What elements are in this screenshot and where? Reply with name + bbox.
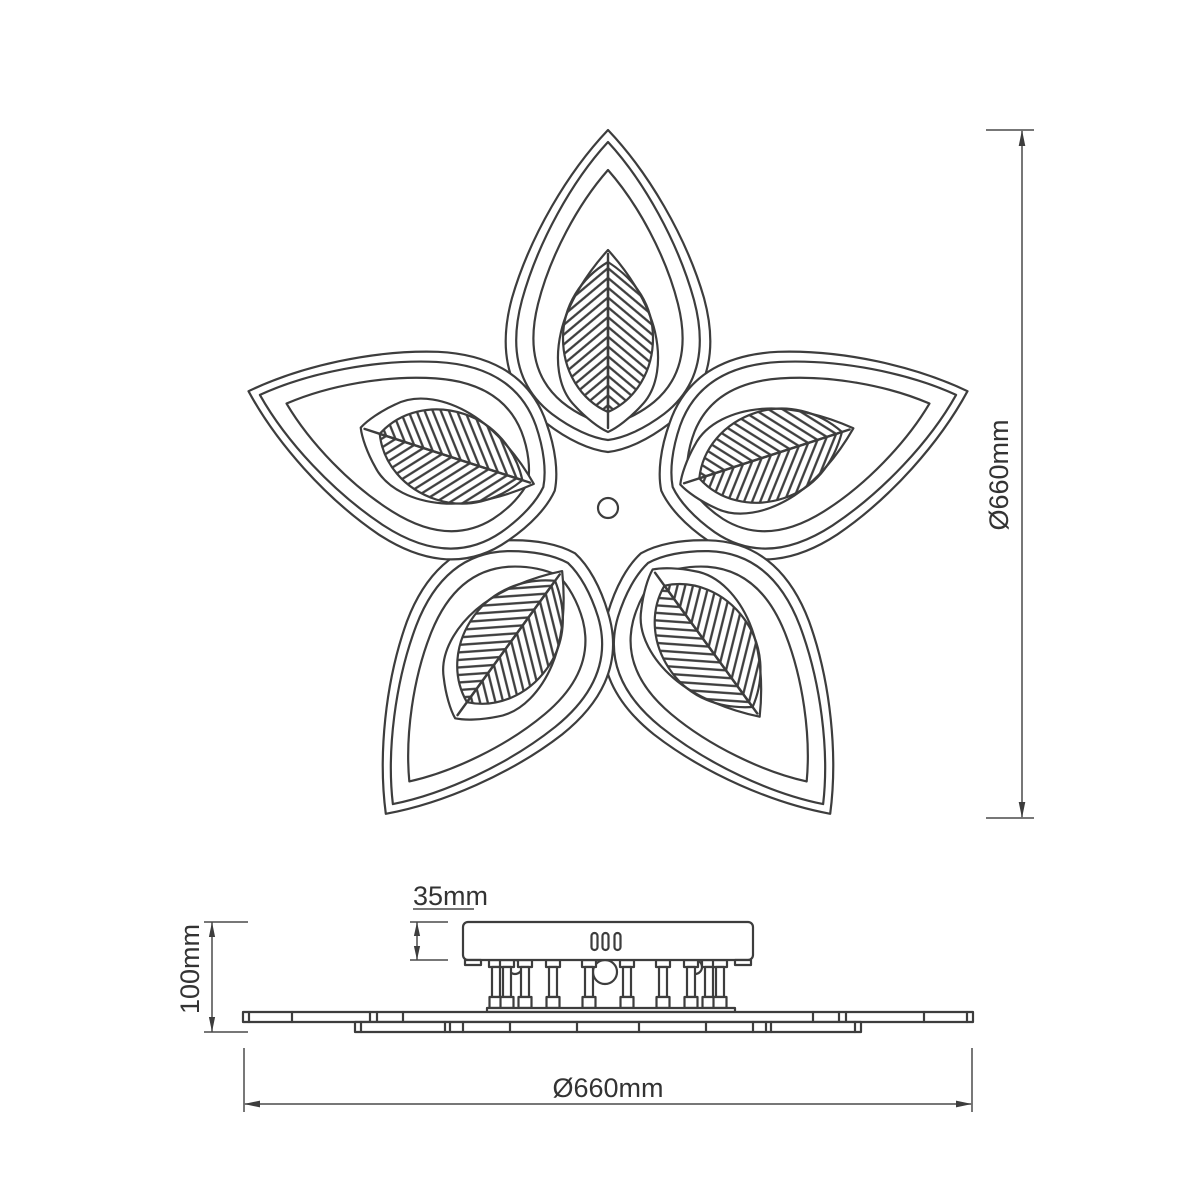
petal (558, 493, 913, 874)
technical-drawing-page: Ø660mm 35mm 100mm Ø660mm (0, 0, 1200, 1200)
driver-circles (508, 960, 702, 984)
base-diameter-label: Ø660mm (552, 1073, 663, 1103)
canopy (463, 922, 753, 965)
flower-top-view (217, 130, 999, 874)
base-plate (243, 1008, 973, 1032)
side-view (243, 922, 973, 1032)
ceiling-lamp-dimension-drawing: Ø660mm 35mm 100mm Ø660mm (0, 0, 1200, 1200)
flower-diameter-label: Ø660mm (984, 419, 1014, 530)
dimension-base-diameter: Ø660mm (244, 1048, 972, 1112)
center-hole (598, 498, 618, 518)
canopy-height-label: 35mm (413, 881, 488, 911)
fixture-height-label: 100mm (175, 924, 205, 1014)
dimension-fixture-height: 100mm (175, 922, 248, 1032)
dimension-flower-diameter: Ø660mm (984, 130, 1034, 818)
